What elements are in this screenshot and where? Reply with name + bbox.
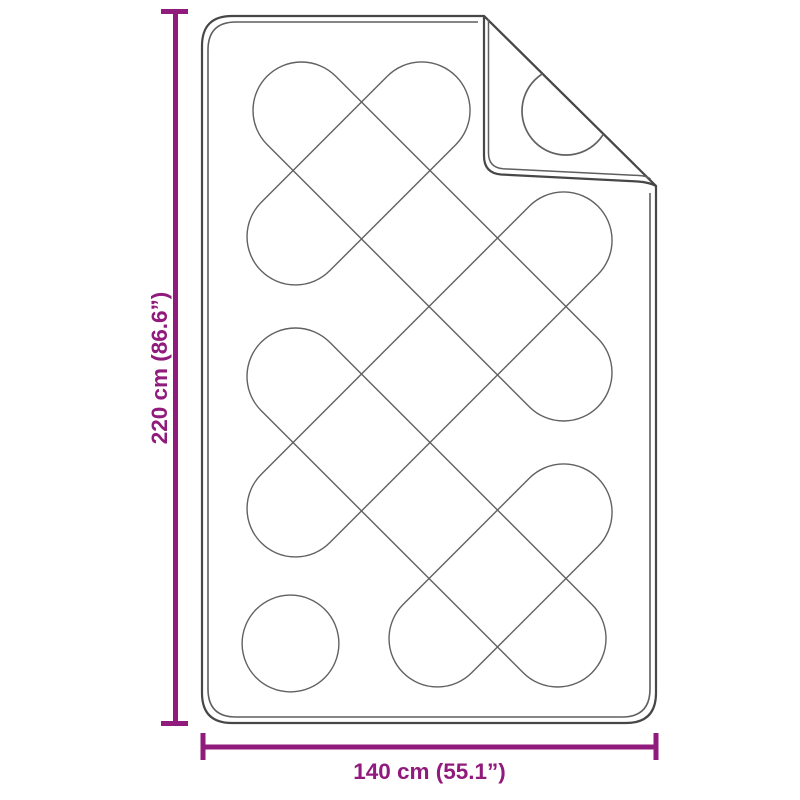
diagram-canvas: 220 cm (86.6”) 140 cm (55.1”) bbox=[0, 0, 800, 800]
width-dimension-right-cap bbox=[654, 733, 659, 760]
fold-flap bbox=[484, 16, 656, 186]
height-dimension: 220 cm (86.6”) bbox=[147, 9, 188, 726]
width-label: 140 cm (55.1”) bbox=[353, 759, 506, 784]
width-dimension: 140 cm (55.1”) bbox=[201, 733, 659, 784]
height-label: 220 cm (86.6”) bbox=[147, 292, 172, 445]
width-dimension-left-cap bbox=[201, 733, 206, 760]
height-dimension-line bbox=[173, 11, 178, 724]
product-dimension-diagram: 220 cm (86.6”) 140 cm (55.1”) bbox=[0, 0, 800, 800]
height-dimension-bottom-cap bbox=[161, 721, 188, 726]
height-dimension-top-cap bbox=[161, 9, 188, 14]
width-dimension-line bbox=[203, 745, 656, 750]
